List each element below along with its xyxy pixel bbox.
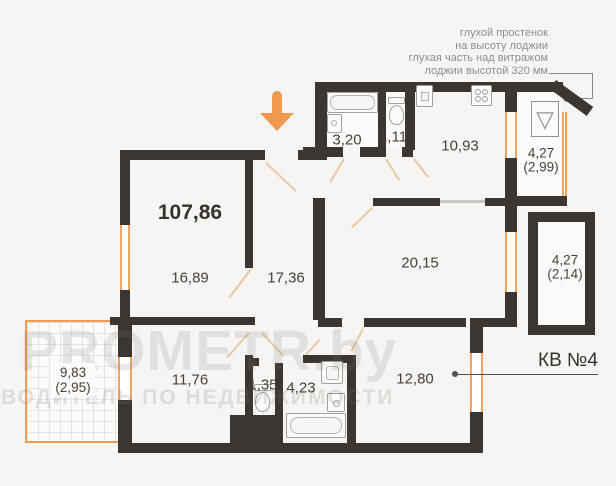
wall-segment bbox=[360, 147, 386, 157]
wall-segment bbox=[230, 415, 275, 443]
bathtub-basin bbox=[290, 417, 342, 434]
wall-segment bbox=[470, 318, 483, 353]
terrace-area-badge: 9,83 (2,95) bbox=[50, 363, 95, 397]
wall-segment bbox=[118, 443, 483, 453]
window bbox=[505, 112, 517, 158]
room-area-label: 16,89 bbox=[171, 270, 209, 287]
bathtub bbox=[327, 92, 378, 113]
annotation-line: глухая часть над витражом bbox=[409, 52, 548, 65]
wall-segment bbox=[483, 318, 517, 327]
wall-segment bbox=[585, 212, 595, 335]
wall-segment bbox=[505, 158, 517, 232]
wall-segment bbox=[528, 325, 595, 335]
loggia-area-label: 4,27 bbox=[552, 253, 578, 268]
room-area-label: 20,15 bbox=[401, 255, 439, 272]
floor-plan: PROMETR.by ПУТЕВОДИТЕЛЬ ПО НЕДВИЖИМОСТИ … bbox=[0, 0, 616, 486]
apartment-number-label: КВ №4 bbox=[538, 350, 598, 372]
apartment-anchor-dot bbox=[452, 371, 458, 377]
sink-drain bbox=[331, 120, 337, 126]
wall-segment bbox=[313, 198, 325, 320]
room-area-label: 1,11 bbox=[379, 129, 407, 146]
wall-segment bbox=[528, 212, 538, 335]
wall-segment bbox=[245, 158, 253, 268]
window bbox=[470, 353, 483, 412]
terrace-area-label: 9,83 bbox=[60, 365, 86, 380]
annotation-leader-line bbox=[549, 73, 593, 74]
toilet-tank bbox=[388, 97, 405, 104]
door-swing bbox=[329, 158, 345, 182]
terrace-reduced-area-label: (2,95) bbox=[55, 380, 90, 395]
annotation-line: глухой простенок bbox=[409, 27, 548, 40]
door-swing bbox=[265, 162, 296, 191]
kitchen-sink-basin bbox=[421, 92, 429, 101]
wall-segment bbox=[120, 150, 265, 160]
window bbox=[505, 232, 517, 292]
room-area-label: 11,76 bbox=[172, 372, 208, 389]
loggia-reduced-area-label: (2,14) bbox=[547, 267, 582, 282]
annotation-line: лоджии высотой 320 мм bbox=[409, 65, 548, 78]
door-swing bbox=[413, 158, 429, 177]
wall-segment bbox=[303, 147, 343, 157]
ventilation-shaft-icon: ▽ bbox=[531, 101, 559, 137]
room-area-label: 3,20 bbox=[332, 132, 361, 149]
sink bbox=[327, 114, 342, 133]
annotation-leader-line bbox=[592, 73, 593, 99]
door-swing bbox=[351, 207, 373, 228]
stove-burners bbox=[474, 88, 489, 103]
door-swing bbox=[229, 268, 252, 298]
bathtub bbox=[286, 413, 346, 438]
entrance-arrow-icon bbox=[260, 113, 294, 131]
wall-opening-marker bbox=[440, 200, 485, 203]
window bbox=[120, 225, 130, 290]
wall-segment bbox=[120, 150, 130, 225]
loggia-reduced-area-label: (2,99) bbox=[523, 160, 558, 175]
room-area-label: 12,80 bbox=[396, 371, 434, 388]
wall-segment bbox=[315, 82, 563, 92]
room-area-label: 10,93 bbox=[441, 138, 479, 155]
toilet-bowl bbox=[389, 105, 404, 125]
loggia-area-label: 4,27 bbox=[528, 146, 554, 161]
wall-segment bbox=[517, 196, 567, 206]
kitchen-sink bbox=[416, 85, 433, 107]
stove bbox=[471, 85, 492, 106]
wall-annotation: глухой простенок на высоту лоджии глухая… bbox=[409, 27, 548, 77]
annotation-line: на высоту лоджии bbox=[409, 40, 548, 53]
apartment-leader-line bbox=[456, 374, 598, 375]
wall-segment bbox=[402, 147, 413, 157]
room-area-label: 17,36 bbox=[267, 270, 305, 287]
bathtub-basin bbox=[330, 95, 375, 110]
wall-segment bbox=[505, 82, 517, 112]
room-area-label: 4,23 bbox=[286, 380, 315, 397]
door-swing bbox=[385, 158, 400, 180]
room-area-label: 1,35 bbox=[248, 377, 277, 394]
wall-segment bbox=[373, 198, 440, 206]
total-area-label: 107,86 bbox=[158, 201, 222, 225]
loggia-glazing bbox=[562, 112, 567, 196]
